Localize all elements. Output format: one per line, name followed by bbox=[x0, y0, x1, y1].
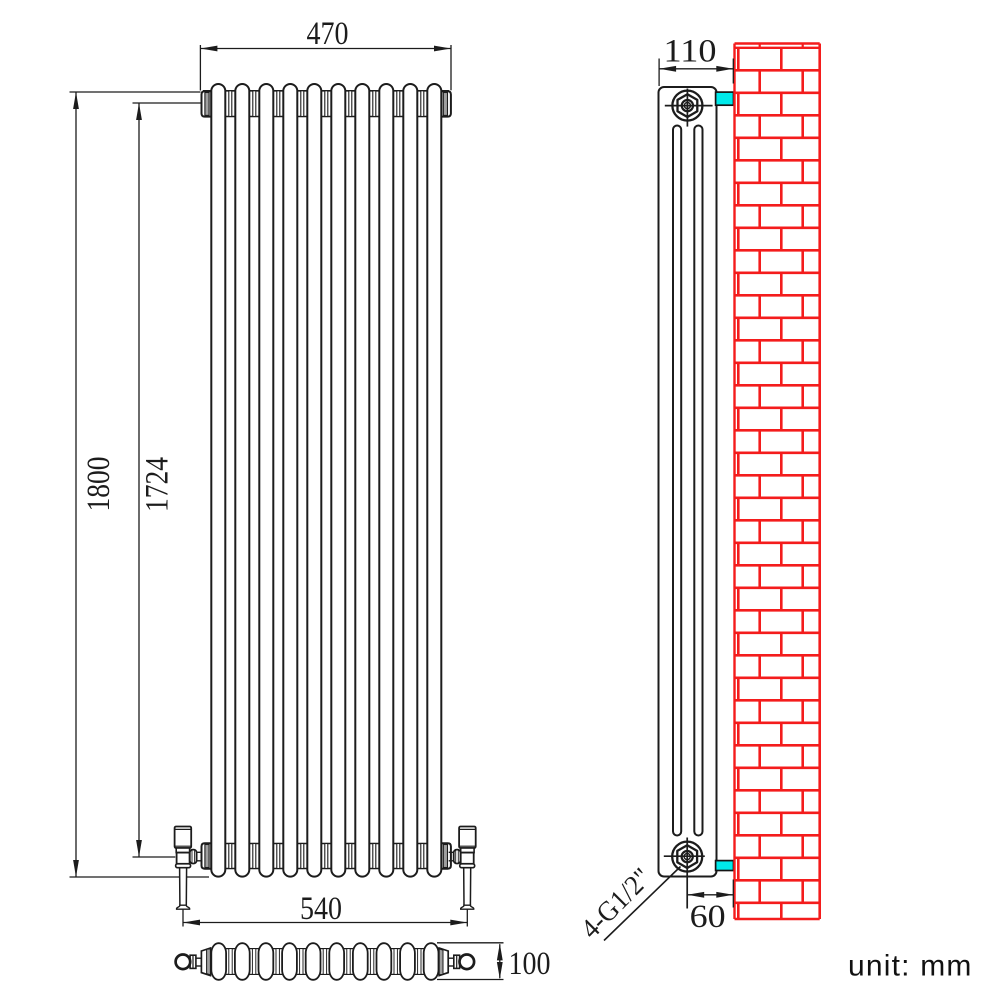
svg-text:110: 110 bbox=[664, 34, 717, 70]
svg-text:1724: 1724 bbox=[140, 457, 176, 512]
svg-text:540: 540 bbox=[300, 891, 342, 927]
svg-text:100: 100 bbox=[509, 946, 551, 982]
svg-text:470: 470 bbox=[307, 16, 349, 52]
svg-text:unit: mm: unit: mm bbox=[848, 950, 973, 983]
svg-text:60: 60 bbox=[690, 899, 726, 935]
svg-text:1800: 1800 bbox=[81, 457, 117, 512]
